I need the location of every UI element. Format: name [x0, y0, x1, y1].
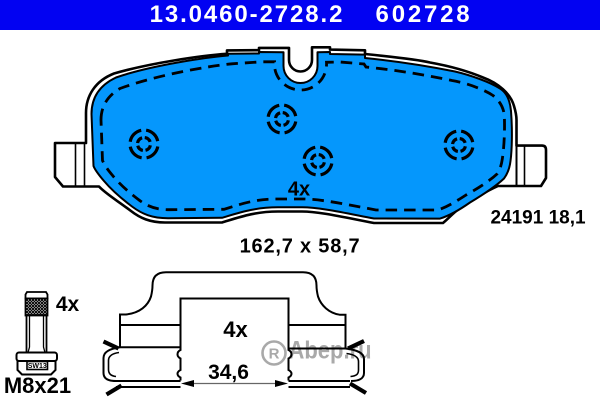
svg-text:Abep.ru: Abep.ru [289, 336, 372, 364]
svg-text:162,7 x 58,7: 162,7 x 58,7 [240, 236, 361, 258]
svg-text:R: R [269, 346, 280, 363]
svg-text:34,6: 34,6 [208, 361, 249, 384]
svg-text:24191 18,1: 24191 18,1 [490, 208, 586, 229]
svg-text:4x: 4x [56, 293, 80, 316]
svg-text:13.0460-2728.2: 13.0460-2728.2 [150, 1, 345, 28]
svg-text:SW13: SW13 [28, 363, 47, 370]
svg-text:4x: 4x [223, 317, 248, 342]
svg-text:4x: 4x [288, 179, 310, 201]
svg-text:M8x21: M8x21 [4, 373, 71, 398]
svg-text:602728: 602728 [376, 1, 473, 28]
